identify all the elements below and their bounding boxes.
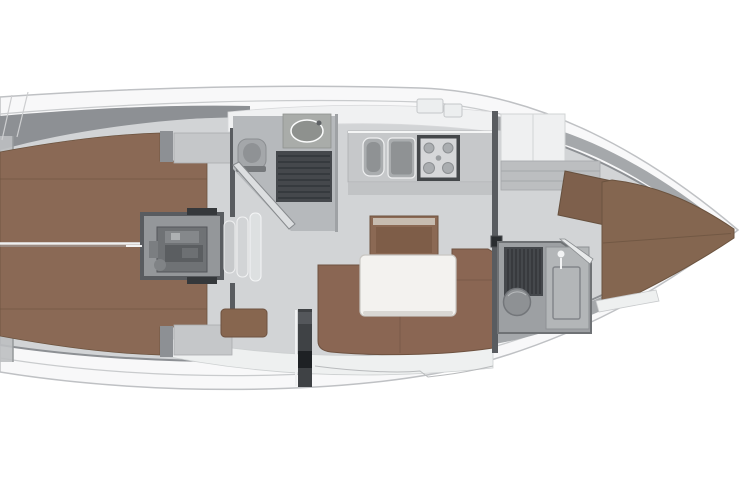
saloon-cabinet <box>370 216 438 258</box>
shower-stall <box>546 247 589 329</box>
sink-small-basin <box>367 142 381 172</box>
berth-shelf-port <box>160 131 173 162</box>
engine-detail-5 <box>182 248 198 258</box>
toilet-seat <box>243 143 261 163</box>
mast-post <box>296 309 312 387</box>
companionway-steps <box>224 213 261 281</box>
hatch-panel-2 <box>444 104 462 117</box>
hatch-panel <box>417 99 443 113</box>
cabin-locker-port <box>174 133 232 163</box>
step-2 <box>237 217 248 277</box>
table-edge-shade <box>363 311 453 315</box>
side-bench <box>221 309 267 337</box>
step-1 <box>224 221 235 273</box>
sink-main <box>388 138 415 178</box>
stove <box>417 135 460 181</box>
round-sink <box>504 289 531 316</box>
engine-cap-top <box>187 208 217 215</box>
step-3 <box>250 213 261 281</box>
saloon-table <box>360 255 456 316</box>
washbasin <box>283 114 331 148</box>
yacht-floor-plan-canvas <box>0 0 744 496</box>
faucet-icon <box>317 121 322 126</box>
stove-knob <box>436 155 442 161</box>
burner-3 <box>424 163 435 174</box>
burner-2 <box>443 143 453 153</box>
counter-front <box>348 182 494 195</box>
forward-head <box>498 239 593 333</box>
burner-1 <box>424 143 434 153</box>
berth-shelf-starboard <box>160 326 173 357</box>
engine-pulley <box>154 259 166 271</box>
post-cap <box>298 312 312 324</box>
cabinet-panel <box>376 227 432 253</box>
boat-floor-plan <box>0 0 744 496</box>
shower-head-icon <box>558 251 565 258</box>
cabinet-rim <box>373 218 435 225</box>
aft-head-shower-grate <box>276 151 332 202</box>
post-base <box>298 351 312 368</box>
v-berth <box>602 180 734 306</box>
sink-small <box>363 138 384 176</box>
engine-detail-1 <box>165 231 199 243</box>
burner-4 <box>443 163 454 174</box>
engine-cap-bottom <box>187 277 217 284</box>
aft-head-wall-right <box>335 114 338 232</box>
table-top <box>360 255 456 316</box>
engine-detail-4 <box>171 233 180 240</box>
sink-main-basin <box>391 142 412 175</box>
engine-compartment <box>126 208 261 284</box>
engine-detail-3 <box>149 241 158 258</box>
galley <box>348 131 494 195</box>
